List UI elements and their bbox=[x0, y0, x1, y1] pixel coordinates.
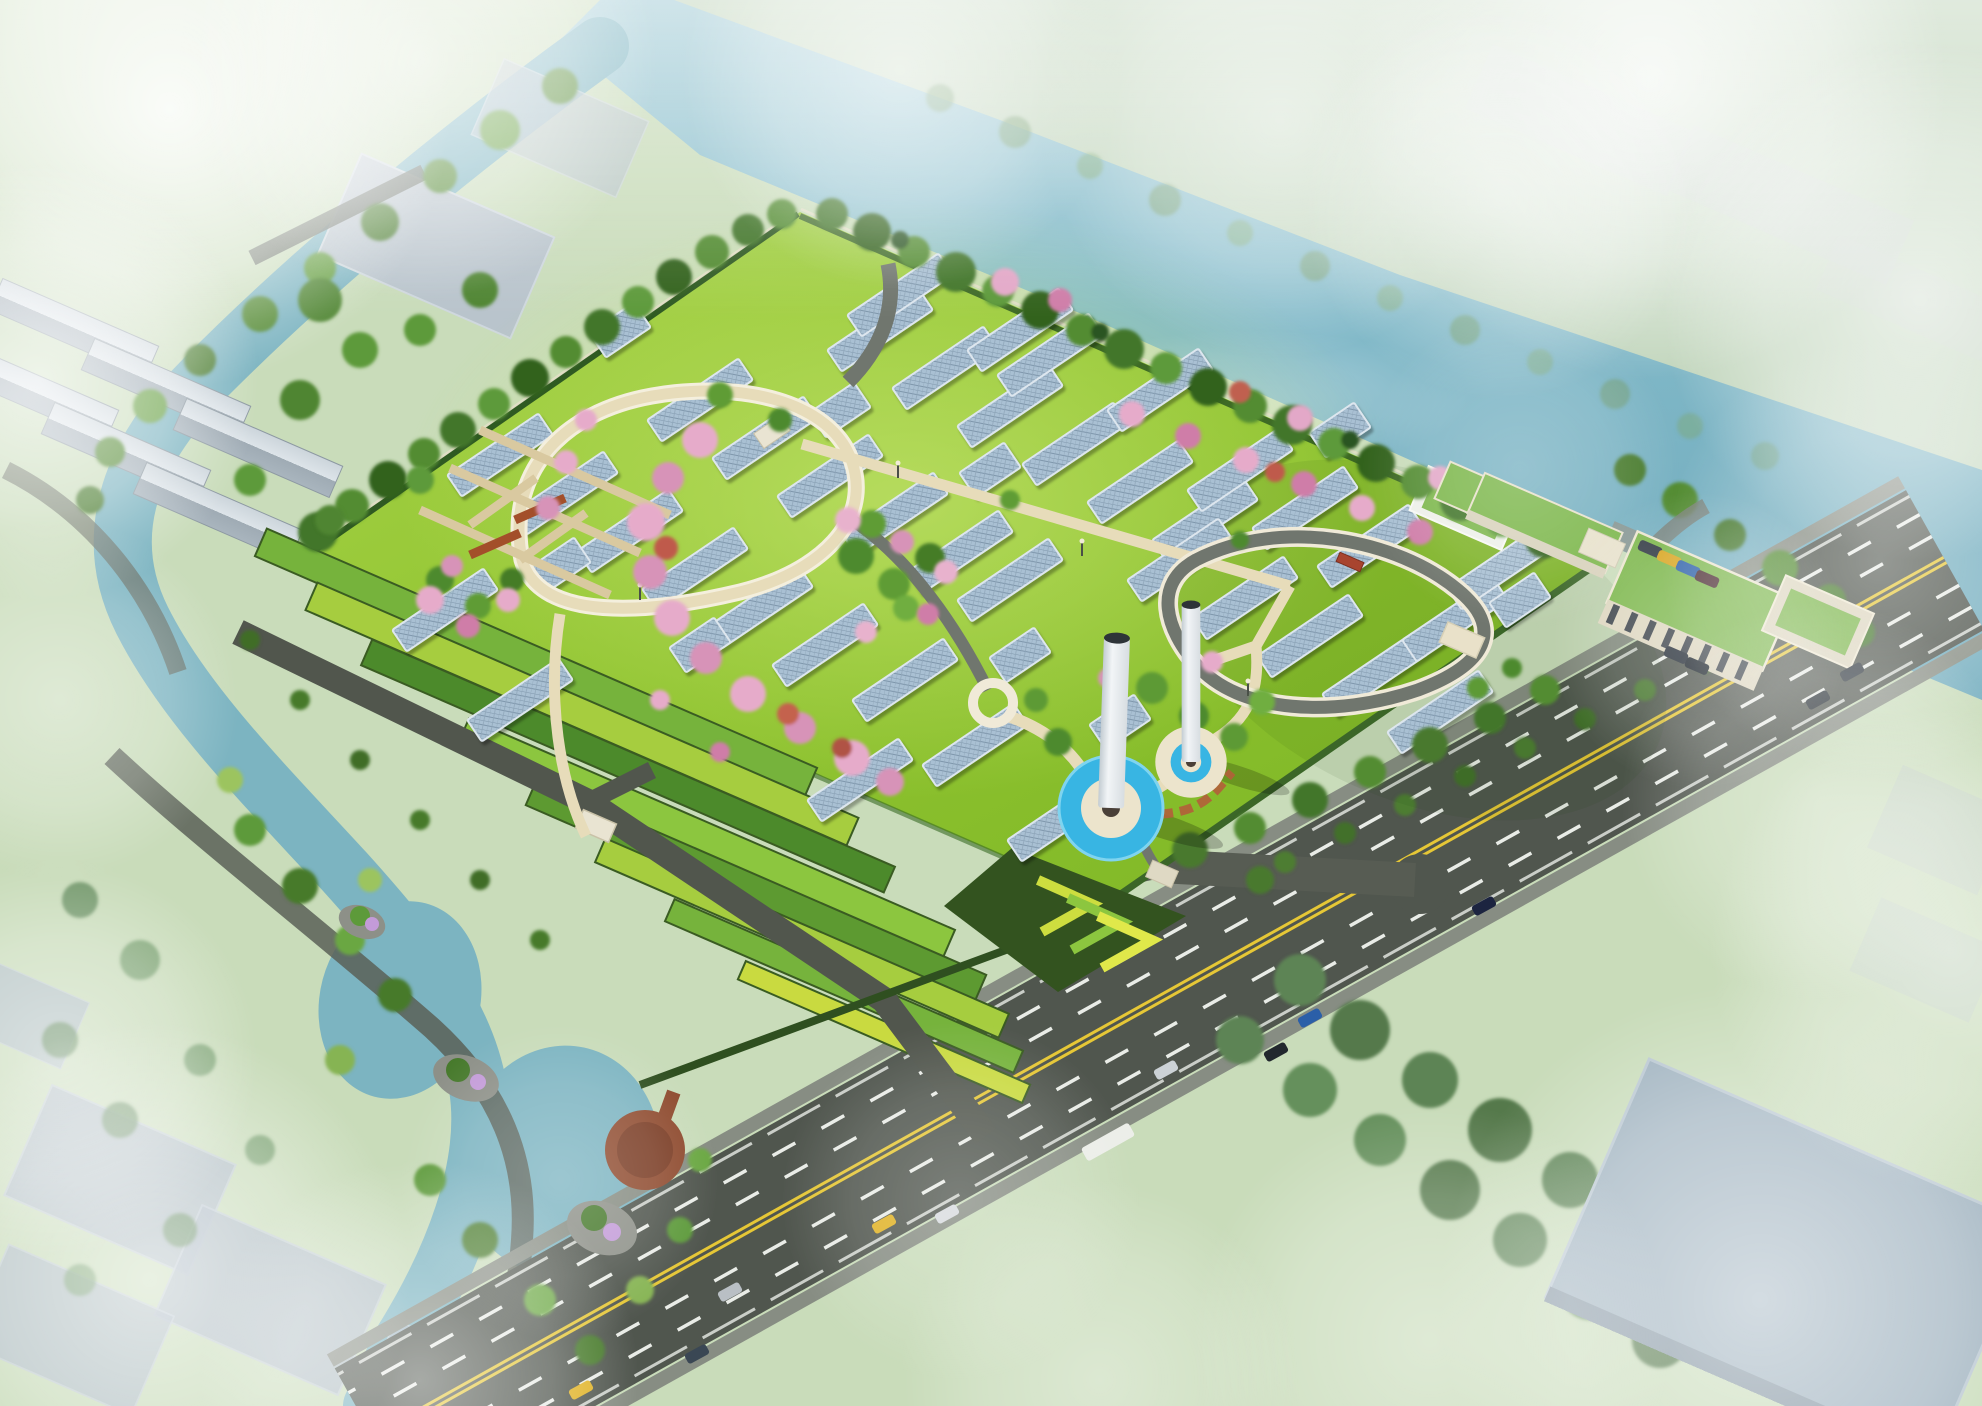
mist-cloud bbox=[400, 1020, 720, 1340]
tree bbox=[1274, 851, 1296, 873]
cherry-blossom-tree bbox=[690, 642, 722, 674]
tree bbox=[325, 1045, 355, 1075]
tree bbox=[410, 810, 430, 830]
tree bbox=[1334, 822, 1356, 844]
cherry-blossom-tree bbox=[496, 588, 520, 612]
tree bbox=[378, 978, 412, 1012]
cherry-blossom-tree bbox=[627, 503, 665, 541]
tower-cylinder bbox=[1182, 605, 1201, 762]
tree bbox=[1234, 812, 1266, 844]
tree bbox=[550, 336, 582, 368]
cherry-blossom-tree bbox=[1229, 381, 1251, 403]
tree bbox=[1150, 352, 1182, 384]
tree bbox=[350, 750, 370, 770]
tree bbox=[234, 814, 266, 846]
tree bbox=[511, 359, 549, 397]
cherry-blossom-tree bbox=[652, 462, 684, 494]
cherry-blossom-tree bbox=[554, 450, 578, 474]
shrub bbox=[707, 382, 733, 408]
cherry-blossom-tree bbox=[416, 586, 444, 614]
cherry-blossom-tree bbox=[890, 530, 914, 554]
tree bbox=[1246, 866, 1274, 894]
cherry-blossom-tree bbox=[934, 560, 958, 584]
tree bbox=[1091, 323, 1109, 341]
shrub bbox=[1231, 531, 1249, 549]
cherry-blossom-tree bbox=[855, 621, 877, 643]
tower-mouth bbox=[1182, 601, 1201, 610]
cherry-blossom-tree bbox=[710, 742, 730, 762]
cherry-blossom-tree bbox=[1233, 447, 1259, 473]
shrub bbox=[1044, 728, 1072, 756]
mist-cloud bbox=[780, 1020, 1140, 1380]
tree bbox=[358, 868, 382, 892]
cherry-blossom-tree bbox=[1287, 405, 1313, 431]
cherry-blossom-tree bbox=[575, 409, 597, 431]
cherry-blossom-tree bbox=[777, 703, 799, 725]
tree bbox=[290, 690, 310, 710]
tree bbox=[470, 870, 490, 890]
tree bbox=[315, 505, 345, 535]
tree bbox=[1104, 329, 1144, 369]
tree bbox=[1292, 782, 1328, 818]
cherry-blossom-tree bbox=[1291, 471, 1317, 497]
shrub bbox=[500, 568, 524, 592]
tree bbox=[1274, 954, 1326, 1006]
lamp bbox=[1080, 539, 1085, 544]
cherry-blossom-tree bbox=[832, 738, 852, 758]
cherry-blossom-tree bbox=[730, 676, 766, 712]
tree bbox=[369, 461, 407, 499]
tree bbox=[408, 438, 440, 470]
tree bbox=[530, 930, 550, 950]
cherry-blossom-tree bbox=[654, 600, 690, 636]
tree bbox=[342, 332, 378, 368]
tree bbox=[282, 868, 318, 904]
tree bbox=[280, 380, 320, 420]
cherry-blossom-tree bbox=[682, 422, 718, 458]
tree bbox=[1283, 1063, 1337, 1117]
mist-cloud bbox=[1550, 490, 1850, 790]
cherry-blossom-tree bbox=[456, 614, 480, 638]
cherry-blossom-tree bbox=[876, 768, 904, 796]
tree bbox=[1216, 1016, 1264, 1064]
cherry-blossom-tree bbox=[917, 603, 939, 625]
shrub bbox=[1249, 689, 1275, 715]
cherry-blossom-tree bbox=[650, 690, 670, 710]
cherry-blossom-tree bbox=[654, 536, 678, 560]
shrub bbox=[1220, 723, 1248, 751]
cherry-blossom-tree bbox=[1119, 401, 1145, 427]
tree bbox=[406, 466, 434, 494]
lamp bbox=[896, 461, 901, 466]
tree bbox=[1341, 431, 1359, 449]
tree bbox=[240, 630, 260, 650]
cherry-blossom-tree bbox=[536, 496, 560, 520]
tree bbox=[1412, 727, 1448, 763]
shrub bbox=[893, 595, 919, 621]
lamp bbox=[1246, 679, 1251, 684]
shrub bbox=[1467, 677, 1489, 699]
shrub bbox=[768, 408, 792, 432]
island-blossom bbox=[365, 917, 379, 931]
cherry-blossom-tree bbox=[1265, 462, 1285, 482]
shrub bbox=[1502, 658, 1522, 678]
aerial-site-rendering bbox=[0, 0, 1982, 1406]
cherry-blossom-tree bbox=[441, 555, 463, 577]
cherry-blossom-tree bbox=[835, 507, 861, 533]
tree bbox=[1402, 1052, 1458, 1108]
shrub bbox=[1136, 672, 1168, 704]
tree bbox=[440, 412, 476, 448]
tree bbox=[1330, 1000, 1390, 1060]
tree bbox=[478, 388, 510, 420]
tree bbox=[1354, 756, 1386, 788]
cherry-blossom-tree bbox=[633, 555, 667, 589]
cherry-blossom-tree bbox=[1201, 651, 1223, 673]
tree bbox=[1189, 368, 1227, 406]
shrub bbox=[1024, 688, 1048, 712]
cherry-blossom-tree bbox=[1175, 423, 1201, 449]
shrub bbox=[1000, 490, 1020, 510]
tree bbox=[1474, 702, 1506, 734]
shrub bbox=[838, 538, 874, 574]
shrub bbox=[858, 510, 886, 538]
